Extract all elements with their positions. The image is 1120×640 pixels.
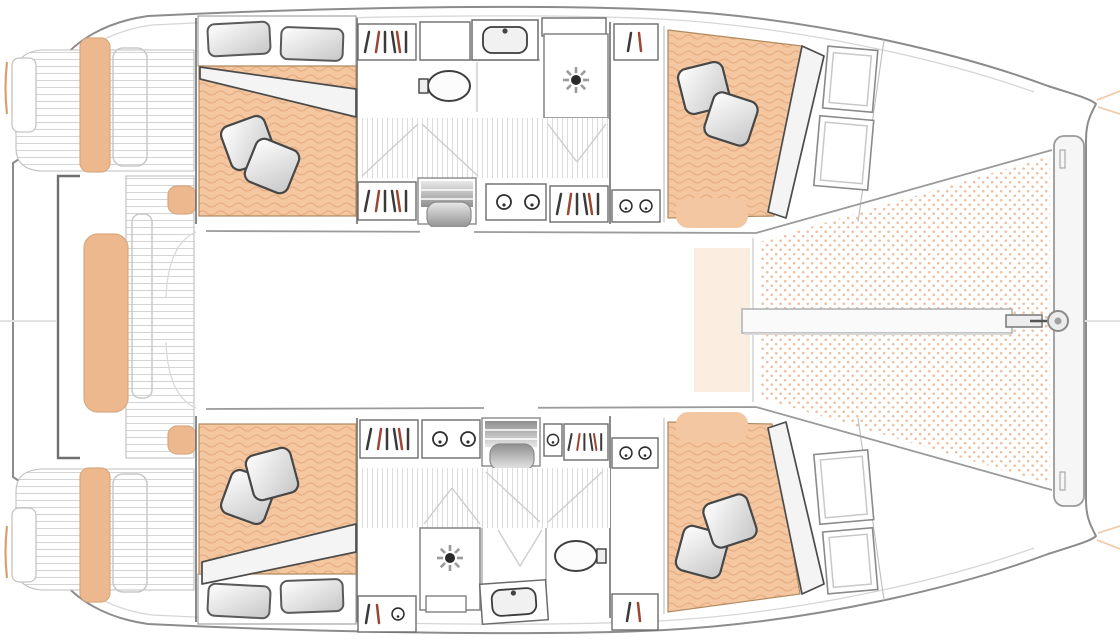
stern-seat-cushion-port (80, 38, 110, 172)
porthole-knob-box (612, 190, 660, 222)
head-pillow (207, 21, 271, 56)
companionway-opening-port (420, 227, 474, 237)
head-pillow (207, 583, 271, 618)
hull-floor (358, 468, 610, 528)
foredeck-pad-starboard (676, 412, 748, 442)
boarding-step-starboard (12, 508, 36, 582)
starboard-aft-cabin (198, 424, 356, 624)
foredeck-pad-port (676, 198, 748, 228)
washbasin (480, 580, 549, 625)
companionway-opening-starboard (484, 403, 538, 413)
corner-cushion-starboard (168, 426, 196, 454)
forestay-pin (1055, 318, 1062, 325)
head-pillow (280, 579, 343, 613)
catamaran-floorplan (0, 0, 1120, 640)
porthole-knob-box (486, 184, 546, 220)
head-pillow (280, 27, 343, 61)
davit-mark-port (6, 62, 8, 114)
cockpit-floor (126, 176, 194, 458)
port-aft-cabin (198, 16, 356, 216)
hull-floor (358, 118, 608, 178)
boarding-step-port (12, 58, 36, 132)
aft-bench-cushion (84, 234, 128, 412)
companionway-steps-port (418, 178, 476, 228)
porthole-knob-box (422, 420, 480, 458)
shower-rose (563, 67, 589, 93)
corner-cushion-port (168, 186, 196, 214)
davit-mark-starboard (6, 526, 8, 578)
cabinet (420, 22, 470, 60)
shower-shelf (426, 596, 466, 612)
longitudinal-beam (742, 309, 1012, 333)
locker-small (614, 24, 658, 60)
shower-rose (437, 545, 463, 571)
glyph-box (612, 594, 658, 630)
washbasin (472, 20, 538, 60)
companionway-steps-starboard (482, 418, 540, 470)
stern-seat-cushion-starboard (80, 468, 110, 602)
